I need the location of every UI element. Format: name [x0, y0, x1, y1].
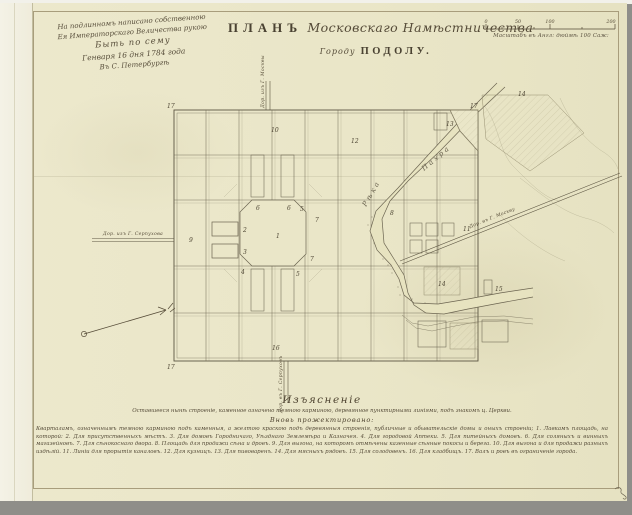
plot-number: 17	[470, 103, 478, 110]
corner-flourish	[615, 488, 626, 500]
legend-subheading: Вновь прожектировано:	[36, 416, 608, 424]
road-label-serpukhov-left: Дор. изъ Г. Серпухова	[102, 231, 163, 237]
plot-number: 1	[276, 233, 280, 240]
plot-number: 14	[518, 91, 526, 98]
plot-number: 13	[446, 121, 454, 128]
plot-number: 9	[189, 237, 193, 244]
legend-intro: Оставшееся нынѣ строеніе, каменное означ…	[36, 408, 608, 415]
plot-number: 17	[167, 103, 175, 110]
plot-number: 4	[240, 269, 245, 276]
legend: Изъясненіе Оставшееся нынѣ строеніе, кам…	[36, 394, 608, 456]
map-sheet: На подлинномъ написано собственною Ея Им…	[0, 3, 627, 501]
river-label-reka: Рѣка	[360, 179, 382, 209]
riverside-blocks	[410, 113, 492, 295]
plot-number: 5	[296, 271, 300, 278]
legend-body: Кварталамъ, означеннымъ темною карминою …	[36, 426, 608, 456]
plot-number: 7	[315, 217, 319, 224]
plot-number: 16	[272, 345, 280, 352]
plot-number: 2	[242, 227, 247, 234]
plot-number: 15	[495, 286, 503, 293]
plot-number: 8	[390, 210, 394, 217]
plot-number: 11	[463, 226, 471, 233]
plot-number: 6	[256, 205, 260, 212]
plot-number: 5	[300, 206, 304, 213]
road-label-moscow-top: Дор. изъ Г. Москвы	[260, 55, 266, 109]
plot-number: 12	[351, 138, 359, 145]
plot-number: 14	[438, 281, 446, 288]
plot-number: 6	[287, 205, 291, 212]
legend-heading: Изъясненіе	[36, 394, 608, 406]
compass-needle	[81, 303, 175, 337]
plot-number: 10	[271, 127, 279, 134]
plot-number: 7	[310, 256, 314, 263]
plot-number: 3	[243, 249, 247, 256]
central-square	[212, 155, 306, 311]
plot-number: 17	[167, 364, 175, 371]
